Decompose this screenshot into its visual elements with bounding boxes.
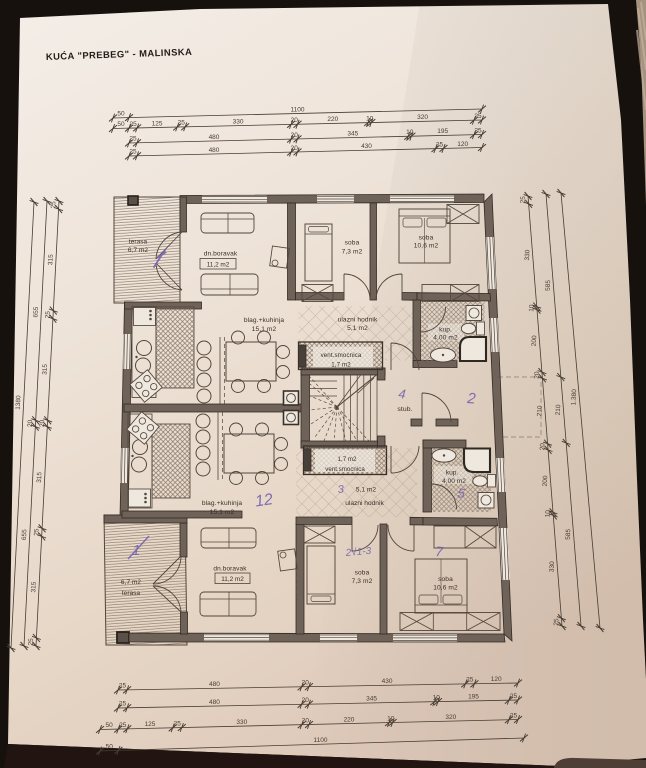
svg-text:20: 20 [291, 132, 299, 139]
svg-text:220: 220 [344, 716, 355, 723]
svg-text:345: 345 [366, 696, 377, 703]
svg-text:1,7 m2: 1,7 m2 [338, 456, 357, 463]
svg-text:2: 2 [466, 390, 477, 408]
svg-text:15,1 m2: 15,1 m2 [210, 509, 235, 516]
svg-text:655: 655 [33, 306, 41, 318]
svg-text:10: 10 [366, 115, 374, 122]
svg-text:12: 12 [254, 491, 274, 510]
svg-text:20: 20 [291, 117, 299, 124]
svg-text:11,2 m2: 11,2 m2 [207, 262, 230, 269]
svg-text:blag.+kuhinja: blag.+kuhinja [244, 317, 285, 324]
svg-text:315: 315 [36, 471, 44, 483]
svg-text:120: 120 [491, 676, 502, 683]
svg-text:25: 25 [119, 683, 127, 690]
svg-text:dn.boravak: dn.boravak [204, 251, 238, 258]
svg-text:kup.: kup. [439, 327, 452, 334]
svg-text:330: 330 [236, 719, 247, 726]
svg-text:1100: 1100 [291, 106, 305, 113]
svg-text:25: 25 [474, 113, 482, 120]
svg-text:25: 25 [28, 638, 35, 646]
svg-text:terasa: terasa [122, 590, 141, 597]
svg-text:480: 480 [209, 147, 220, 154]
svg-text:25: 25 [129, 121, 137, 128]
svg-text:4,00 m2: 4,00 m2 [433, 335, 458, 342]
svg-text:330: 330 [549, 561, 557, 573]
svg-text:25: 25 [466, 677, 474, 684]
svg-text:1,7 m2: 1,7 m2 [331, 362, 351, 369]
svg-text:10: 10 [528, 304, 535, 312]
svg-text:5,1 m2: 5,1 m2 [347, 325, 368, 332]
svg-text:4,00 m2: 4,00 m2 [442, 478, 466, 485]
svg-text:20: 20 [302, 717, 310, 724]
svg-text:430: 430 [382, 678, 393, 685]
svg-text:kup.: kup. [446, 470, 459, 477]
svg-text:10: 10 [544, 510, 551, 518]
svg-text:480: 480 [209, 699, 220, 706]
svg-text:120: 120 [457, 141, 468, 148]
svg-text:315: 315 [47, 254, 55, 266]
svg-text:25: 25 [33, 528, 40, 536]
svg-text:25: 25 [436, 141, 444, 148]
svg-text:25: 25 [44, 310, 51, 318]
svg-text:10,6 m2: 10,6 m2 [414, 243, 439, 250]
svg-text:11,2 m2: 11,2 m2 [221, 576, 244, 583]
svg-text:210: 210 [536, 405, 544, 417]
svg-text:430: 430 [361, 143, 372, 150]
svg-text:vent.smocnica: vent.smocnica [321, 352, 362, 359]
svg-text:25: 25 [510, 693, 518, 700]
svg-text:195: 195 [437, 128, 448, 135]
svg-text:25: 25 [474, 127, 482, 134]
svg-text:25: 25 [510, 712, 518, 719]
svg-text:blag.+kuhinja: blag.+kuhinja [202, 500, 243, 507]
svg-text:315: 315 [42, 363, 50, 375]
svg-text:2√1-3: 2√1-3 [344, 545, 372, 559]
svg-text:vent.smocnica: vent.smocnica [325, 466, 365, 473]
svg-text:1.380: 1.380 [570, 389, 578, 406]
svg-text:320: 320 [445, 714, 456, 721]
svg-text:20: 20 [539, 443, 546, 451]
svg-text:25: 25 [50, 201, 57, 209]
svg-text:220: 220 [327, 116, 338, 123]
svg-text:1380: 1380 [15, 395, 23, 410]
svg-text:10: 10 [387, 715, 395, 722]
svg-text:315: 315 [30, 581, 38, 593]
svg-text:dn.boravak: dn.boravak [213, 566, 247, 573]
svg-text:25: 25 [119, 722, 127, 729]
svg-text:585: 585 [545, 280, 553, 292]
svg-text:10: 10 [433, 694, 441, 701]
svg-text:25: 25 [129, 149, 137, 156]
svg-text:soba: soba [355, 570, 370, 577]
svg-text:20: 20 [291, 145, 299, 152]
svg-text:50: 50 [106, 744, 114, 751]
svg-text:1100: 1100 [314, 737, 328, 744]
svg-text:10,6 m2: 10,6 m2 [433, 585, 458, 592]
svg-text:ulazni hodnik: ulazni hodnik [338, 317, 378, 324]
svg-text:50: 50 [117, 111, 125, 118]
svg-text:330: 330 [233, 118, 244, 125]
svg-text:soba: soba [438, 576, 453, 583]
svg-text:50: 50 [105, 722, 113, 729]
svg-text:195: 195 [468, 694, 479, 701]
svg-text:terasa: terasa [129, 239, 148, 246]
svg-text:25: 25 [520, 196, 527, 204]
svg-text:ulazni hodnik: ulazni hodnik [345, 500, 384, 507]
svg-text:345: 345 [347, 130, 358, 137]
svg-text:125: 125 [152, 120, 163, 127]
svg-text:5,1 m2: 5,1 m2 [356, 487, 376, 494]
svg-text:655: 655 [21, 529, 29, 541]
svg-text:480: 480 [209, 134, 220, 141]
svg-text:20: 20 [534, 371, 541, 379]
svg-text:6,7 m2: 6,7 m2 [128, 247, 148, 254]
svg-text:25: 25 [129, 136, 137, 143]
svg-text:125: 125 [145, 721, 156, 728]
svg-text:10: 10 [406, 129, 414, 136]
svg-text:15,1 m2: 15,1 m2 [252, 326, 277, 333]
svg-text:585: 585 [565, 528, 573, 540]
svg-text:320: 320 [417, 114, 428, 121]
svg-text:20: 20 [39, 419, 46, 427]
svg-text:200: 200 [542, 475, 550, 487]
svg-text:25: 25 [119, 701, 127, 708]
svg-text:330: 330 [524, 249, 532, 261]
svg-text:25: 25 [553, 618, 560, 626]
svg-text:200: 200 [531, 335, 539, 347]
svg-text:stub.: stub. [397, 406, 412, 413]
svg-text:25: 25 [178, 120, 186, 127]
svg-text:25: 25 [174, 721, 182, 728]
svg-text:210: 210 [555, 404, 563, 416]
svg-text:20: 20 [302, 680, 310, 687]
svg-text:50: 50 [117, 121, 125, 128]
svg-text:7,3 m2: 7,3 m2 [342, 249, 363, 256]
svg-text:20: 20 [302, 697, 310, 704]
svg-text:7,3 m2: 7,3 m2 [352, 578, 373, 585]
svg-text:soba: soba [419, 235, 434, 242]
svg-text:soba: soba [345, 240, 360, 247]
svg-text:6,7 m2: 6,7 m2 [121, 579, 141, 586]
svg-text:480: 480 [209, 681, 220, 688]
svg-text:20: 20 [27, 419, 34, 427]
